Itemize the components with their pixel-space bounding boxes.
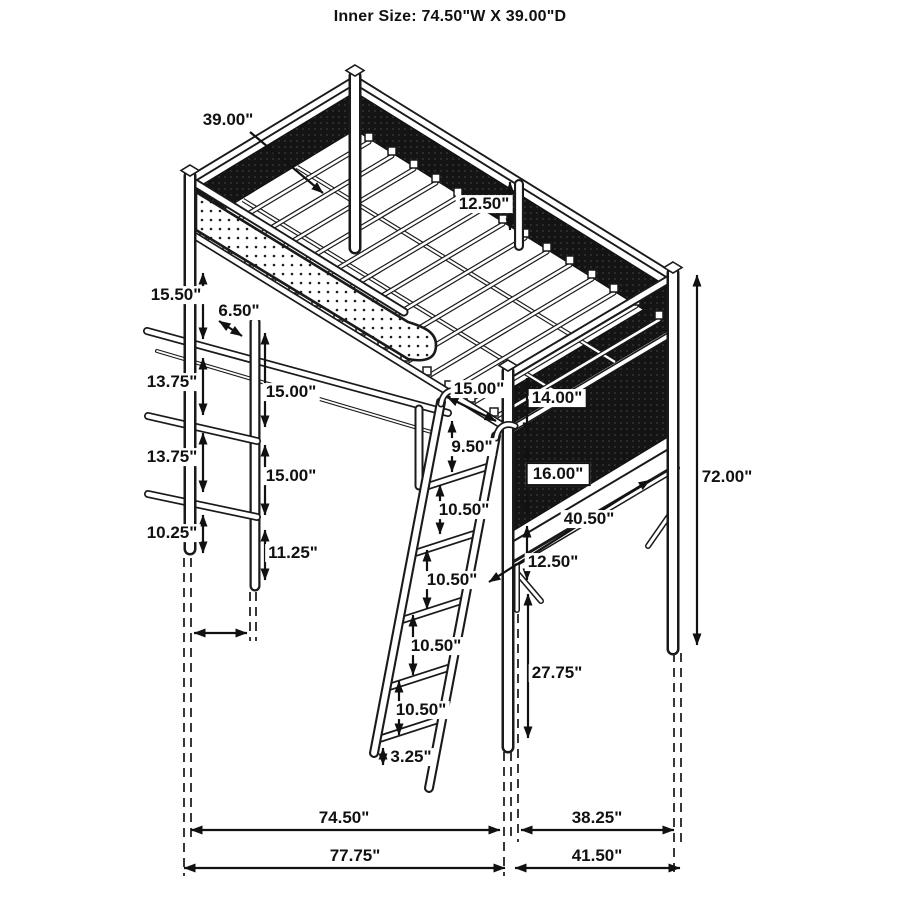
perforated-panel bbox=[196, 192, 436, 360]
dimension-label: 10.50" bbox=[393, 701, 450, 719]
diagram-title: Inner Size: 74.50"W X 39.00"D bbox=[0, 8, 900, 26]
dimension-label: 16.00" bbox=[526, 462, 591, 486]
dimension-label: 15.00" bbox=[451, 380, 508, 398]
dimension-label: 14.00" bbox=[529, 389, 586, 407]
dimension-label: 13.75" bbox=[144, 373, 201, 391]
dimension-label: 38.25" bbox=[569, 809, 626, 827]
dimension-label: 10.50" bbox=[436, 501, 493, 519]
dimension-label: 15.50" bbox=[148, 286, 205, 304]
dimension-label: 10.50" bbox=[424, 571, 481, 589]
dimension-label: 41.50" bbox=[569, 847, 626, 865]
dimension-label: 77.75" bbox=[327, 847, 384, 865]
dimension-label: 15.00" bbox=[263, 383, 320, 401]
dimension-label: 13.75" bbox=[144, 448, 201, 466]
dimension-label: 72.00" bbox=[699, 468, 756, 486]
dimension-label: 40.50" bbox=[561, 510, 618, 528]
dimension-label: 12.50" bbox=[525, 553, 582, 571]
dimension-diagram: Inner Size: 74.50"W X 39.00"D 39.00"12.5… bbox=[0, 0, 900, 900]
dimension-label: 10.50" bbox=[408, 637, 465, 655]
dimension-label: 6.50" bbox=[215, 302, 262, 320]
dimension-label: 12.50" bbox=[456, 195, 513, 213]
dimension-label: 39.00" bbox=[200, 111, 257, 129]
top-rails bbox=[190, 80, 673, 375]
dimension-label: 3.25" bbox=[387, 748, 434, 766]
dimension-label: 10.25" bbox=[144, 524, 201, 542]
dimension-label: 15.00" bbox=[263, 467, 320, 485]
dimension-label: 11.25" bbox=[265, 544, 321, 562]
dimension-label: 9.50" bbox=[448, 438, 495, 456]
dimension-label: 74.50" bbox=[316, 809, 373, 827]
dimension-label: 27.75" bbox=[529, 664, 586, 682]
